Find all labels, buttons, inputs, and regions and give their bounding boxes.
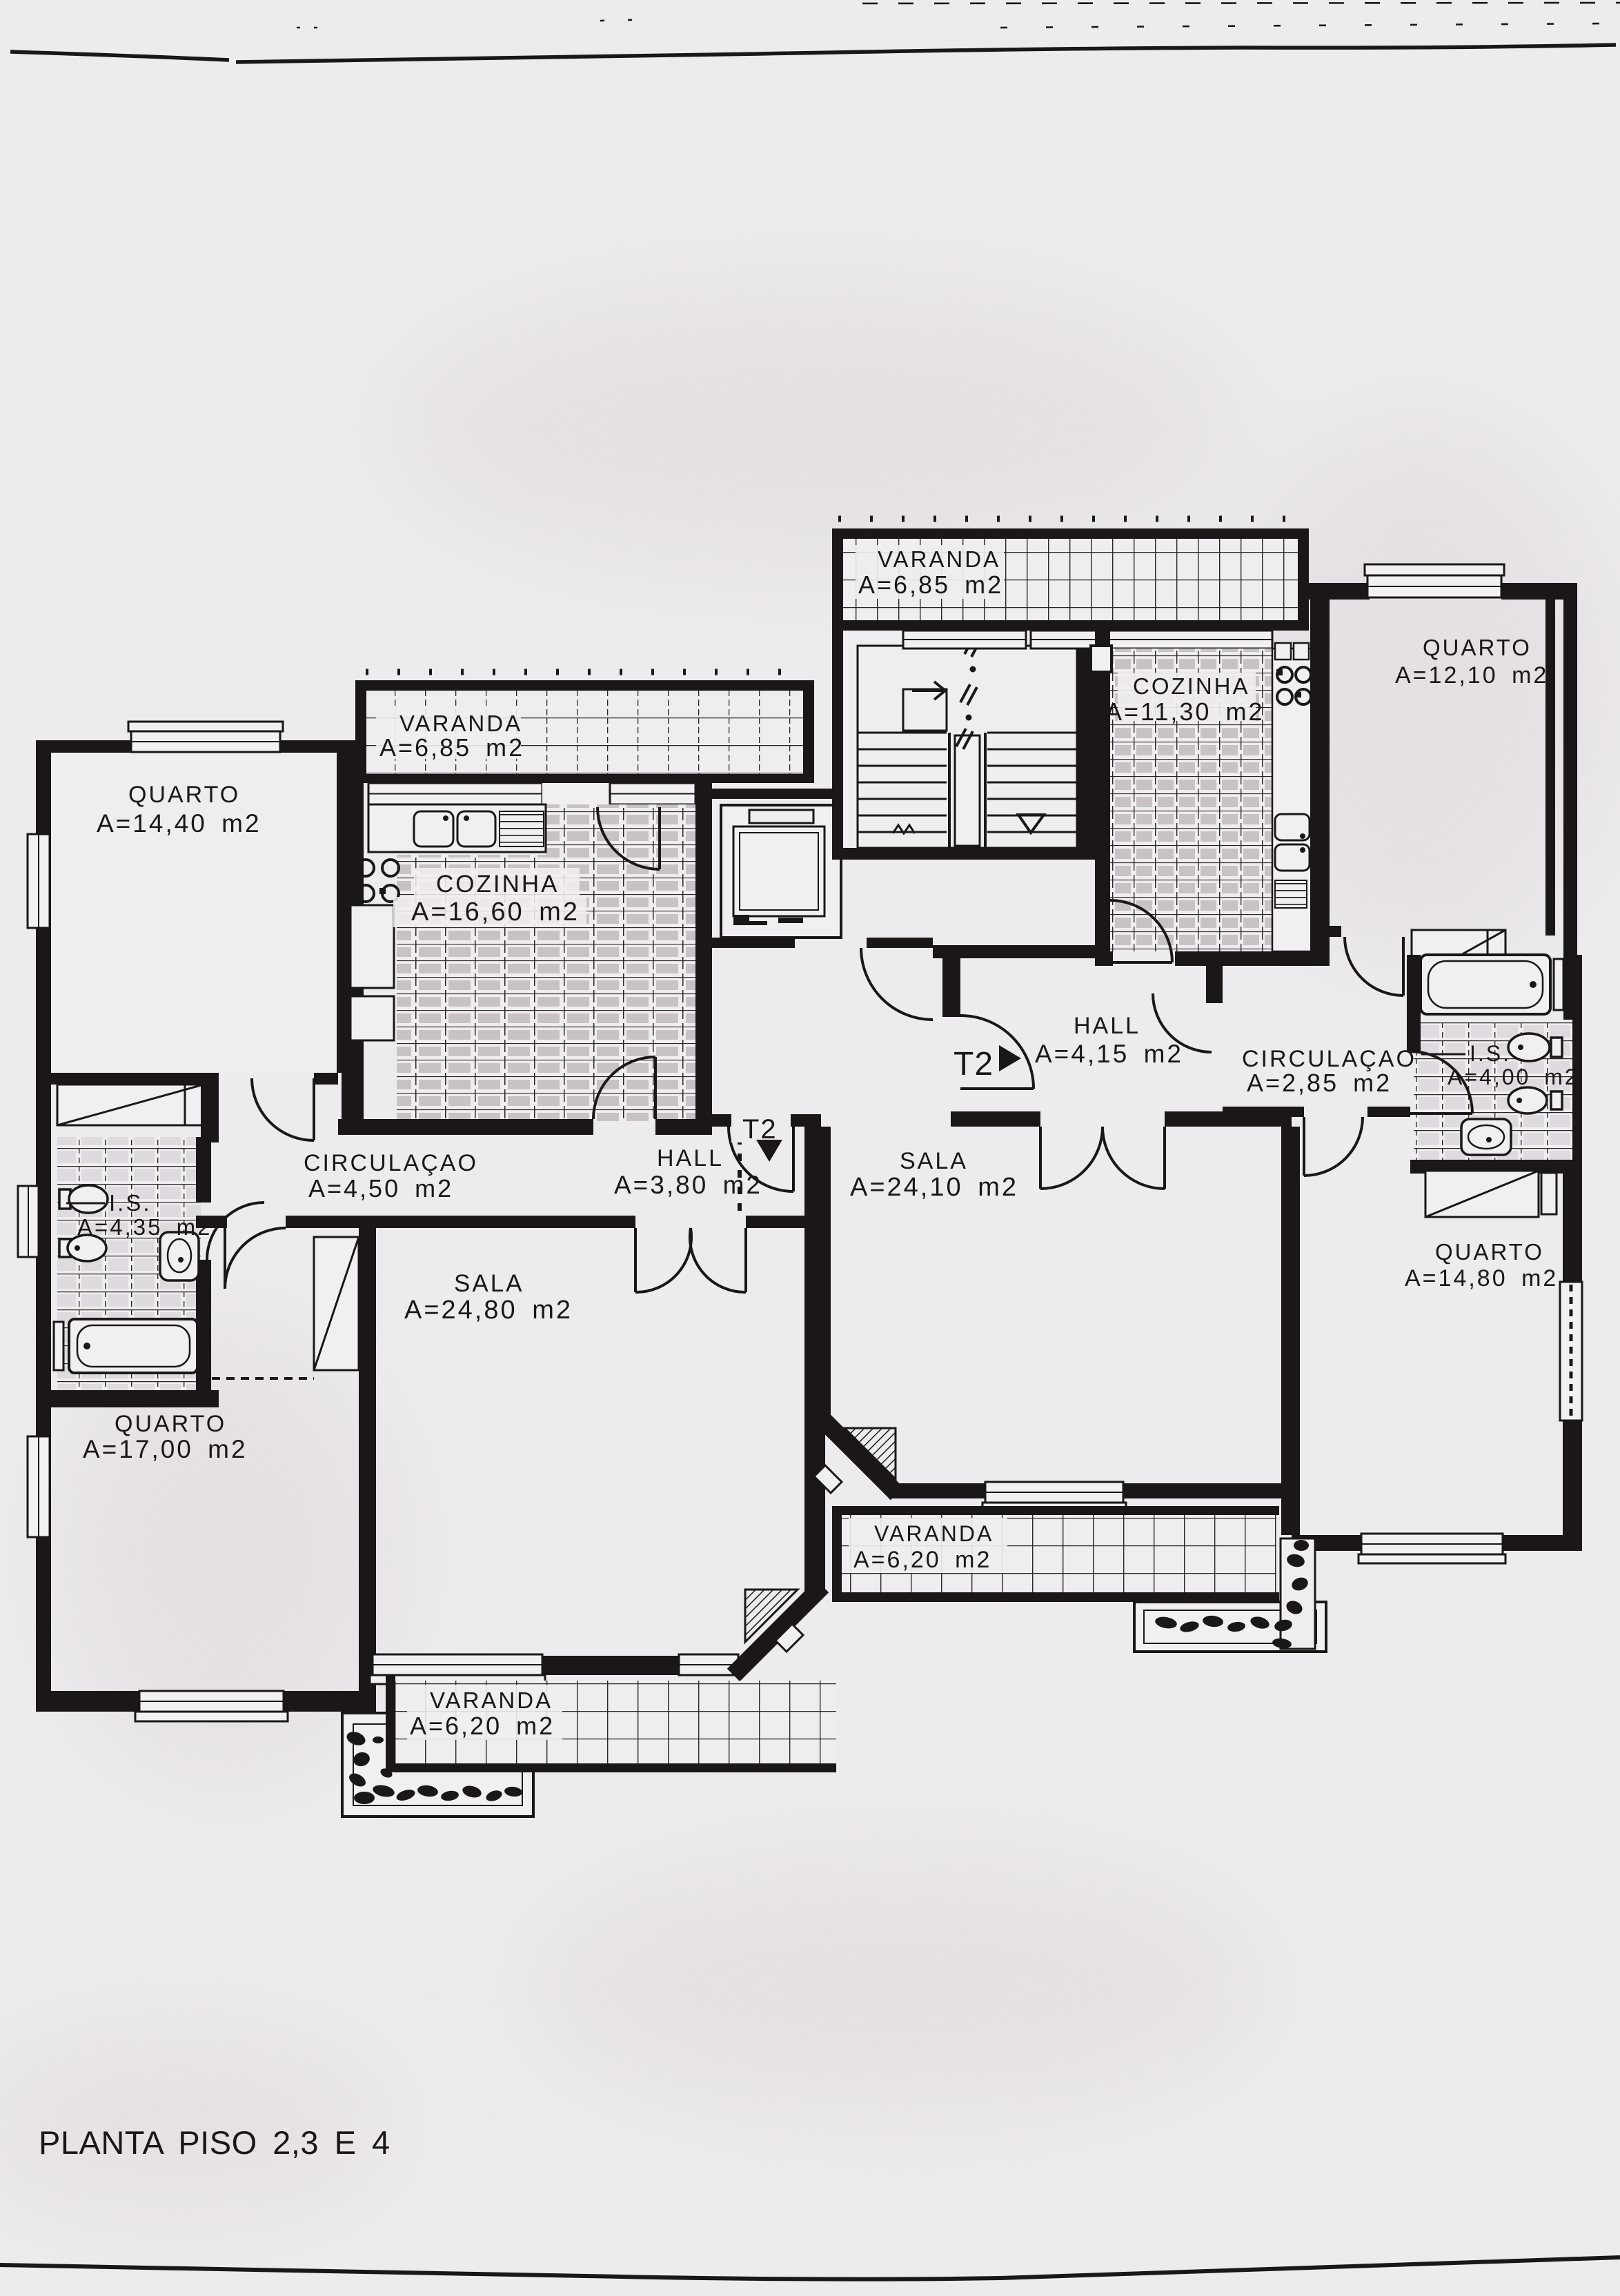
svg-text:A=17,00 m2: A=17,00 m2 (83, 1435, 248, 1463)
svg-text:A=6,20 m2: A=6,20 m2 (410, 1712, 555, 1740)
svg-text:A=4,00 m2: A=4,00 m2 (1448, 1065, 1579, 1089)
svg-text:A=14,80 m2: A=14,80 m2 (1405, 1265, 1558, 1291)
svg-text:QUARTO: QUARTO (115, 1411, 226, 1437)
svg-text:A=6,20 m2: A=6,20 m2 (853, 1547, 991, 1573)
svg-text:A=24,10 m2: A=24,10 m2 (850, 1173, 1018, 1202)
svg-text:SALA: SALA (454, 1270, 524, 1297)
svg-text:A=14,40 m2: A=14,40 m2 (97, 809, 261, 838)
svg-text:A=2,85 m2: A=2,85 m2 (1247, 1069, 1392, 1097)
svg-text:A=6,85 m2: A=6,85 m2 (379, 733, 524, 762)
svg-text:VARANDA: VARANDA (430, 1688, 553, 1713)
svg-text:QUARTO: QUARTO (128, 782, 240, 808)
svg-text:PLANTA PISO 2,3 E 4: PLANTA PISO 2,3 E 4 (39, 2124, 391, 2161)
svg-text:COZINHA: COZINHA (1133, 673, 1250, 699)
svg-text:SALA: SALA (900, 1148, 968, 1174)
svg-text:A=16,60 m2: A=16,60 m2 (411, 898, 580, 927)
svg-text:I.S.: I.S. (1470, 1041, 1511, 1066)
svg-text:HALL: HALL (657, 1145, 724, 1171)
svg-text:VARANDA: VARANDA (878, 546, 1000, 572)
svg-text:A=6,85 m2: A=6,85 m2 (858, 571, 1003, 599)
svg-text:COZINHA: COZINHA (436, 871, 560, 898)
svg-text:VARANDA: VARANDA (874, 1521, 994, 1546)
svg-text:T2: T2 (954, 1046, 994, 1082)
svg-text:VARANDA: VARANDA (399, 711, 522, 736)
svg-text:A=11,30 m2: A=11,30 m2 (1105, 697, 1264, 726)
svg-text:A=12,10 m2: A=12,10 m2 (1395, 662, 1548, 689)
svg-text:HALL: HALL (1074, 1013, 1140, 1039)
svg-text:A=24,80 m2: A=24,80 m2 (404, 1296, 573, 1325)
svg-text:CIRCULAÇAO: CIRCULAÇAO (304, 1150, 478, 1176)
svg-text:QUARTO: QUARTO (1423, 635, 1532, 660)
svg-text:A=4,50 m2: A=4,50 m2 (308, 1174, 453, 1203)
svg-text:QUARTO: QUARTO (1435, 1239, 1544, 1265)
svg-text:A=4,35 m2: A=4,35 m2 (77, 1214, 213, 1240)
svg-text:A=4,15 m2: A=4,15 m2 (1035, 1040, 1183, 1068)
svg-text:I.S.: I.S. (109, 1190, 152, 1216)
